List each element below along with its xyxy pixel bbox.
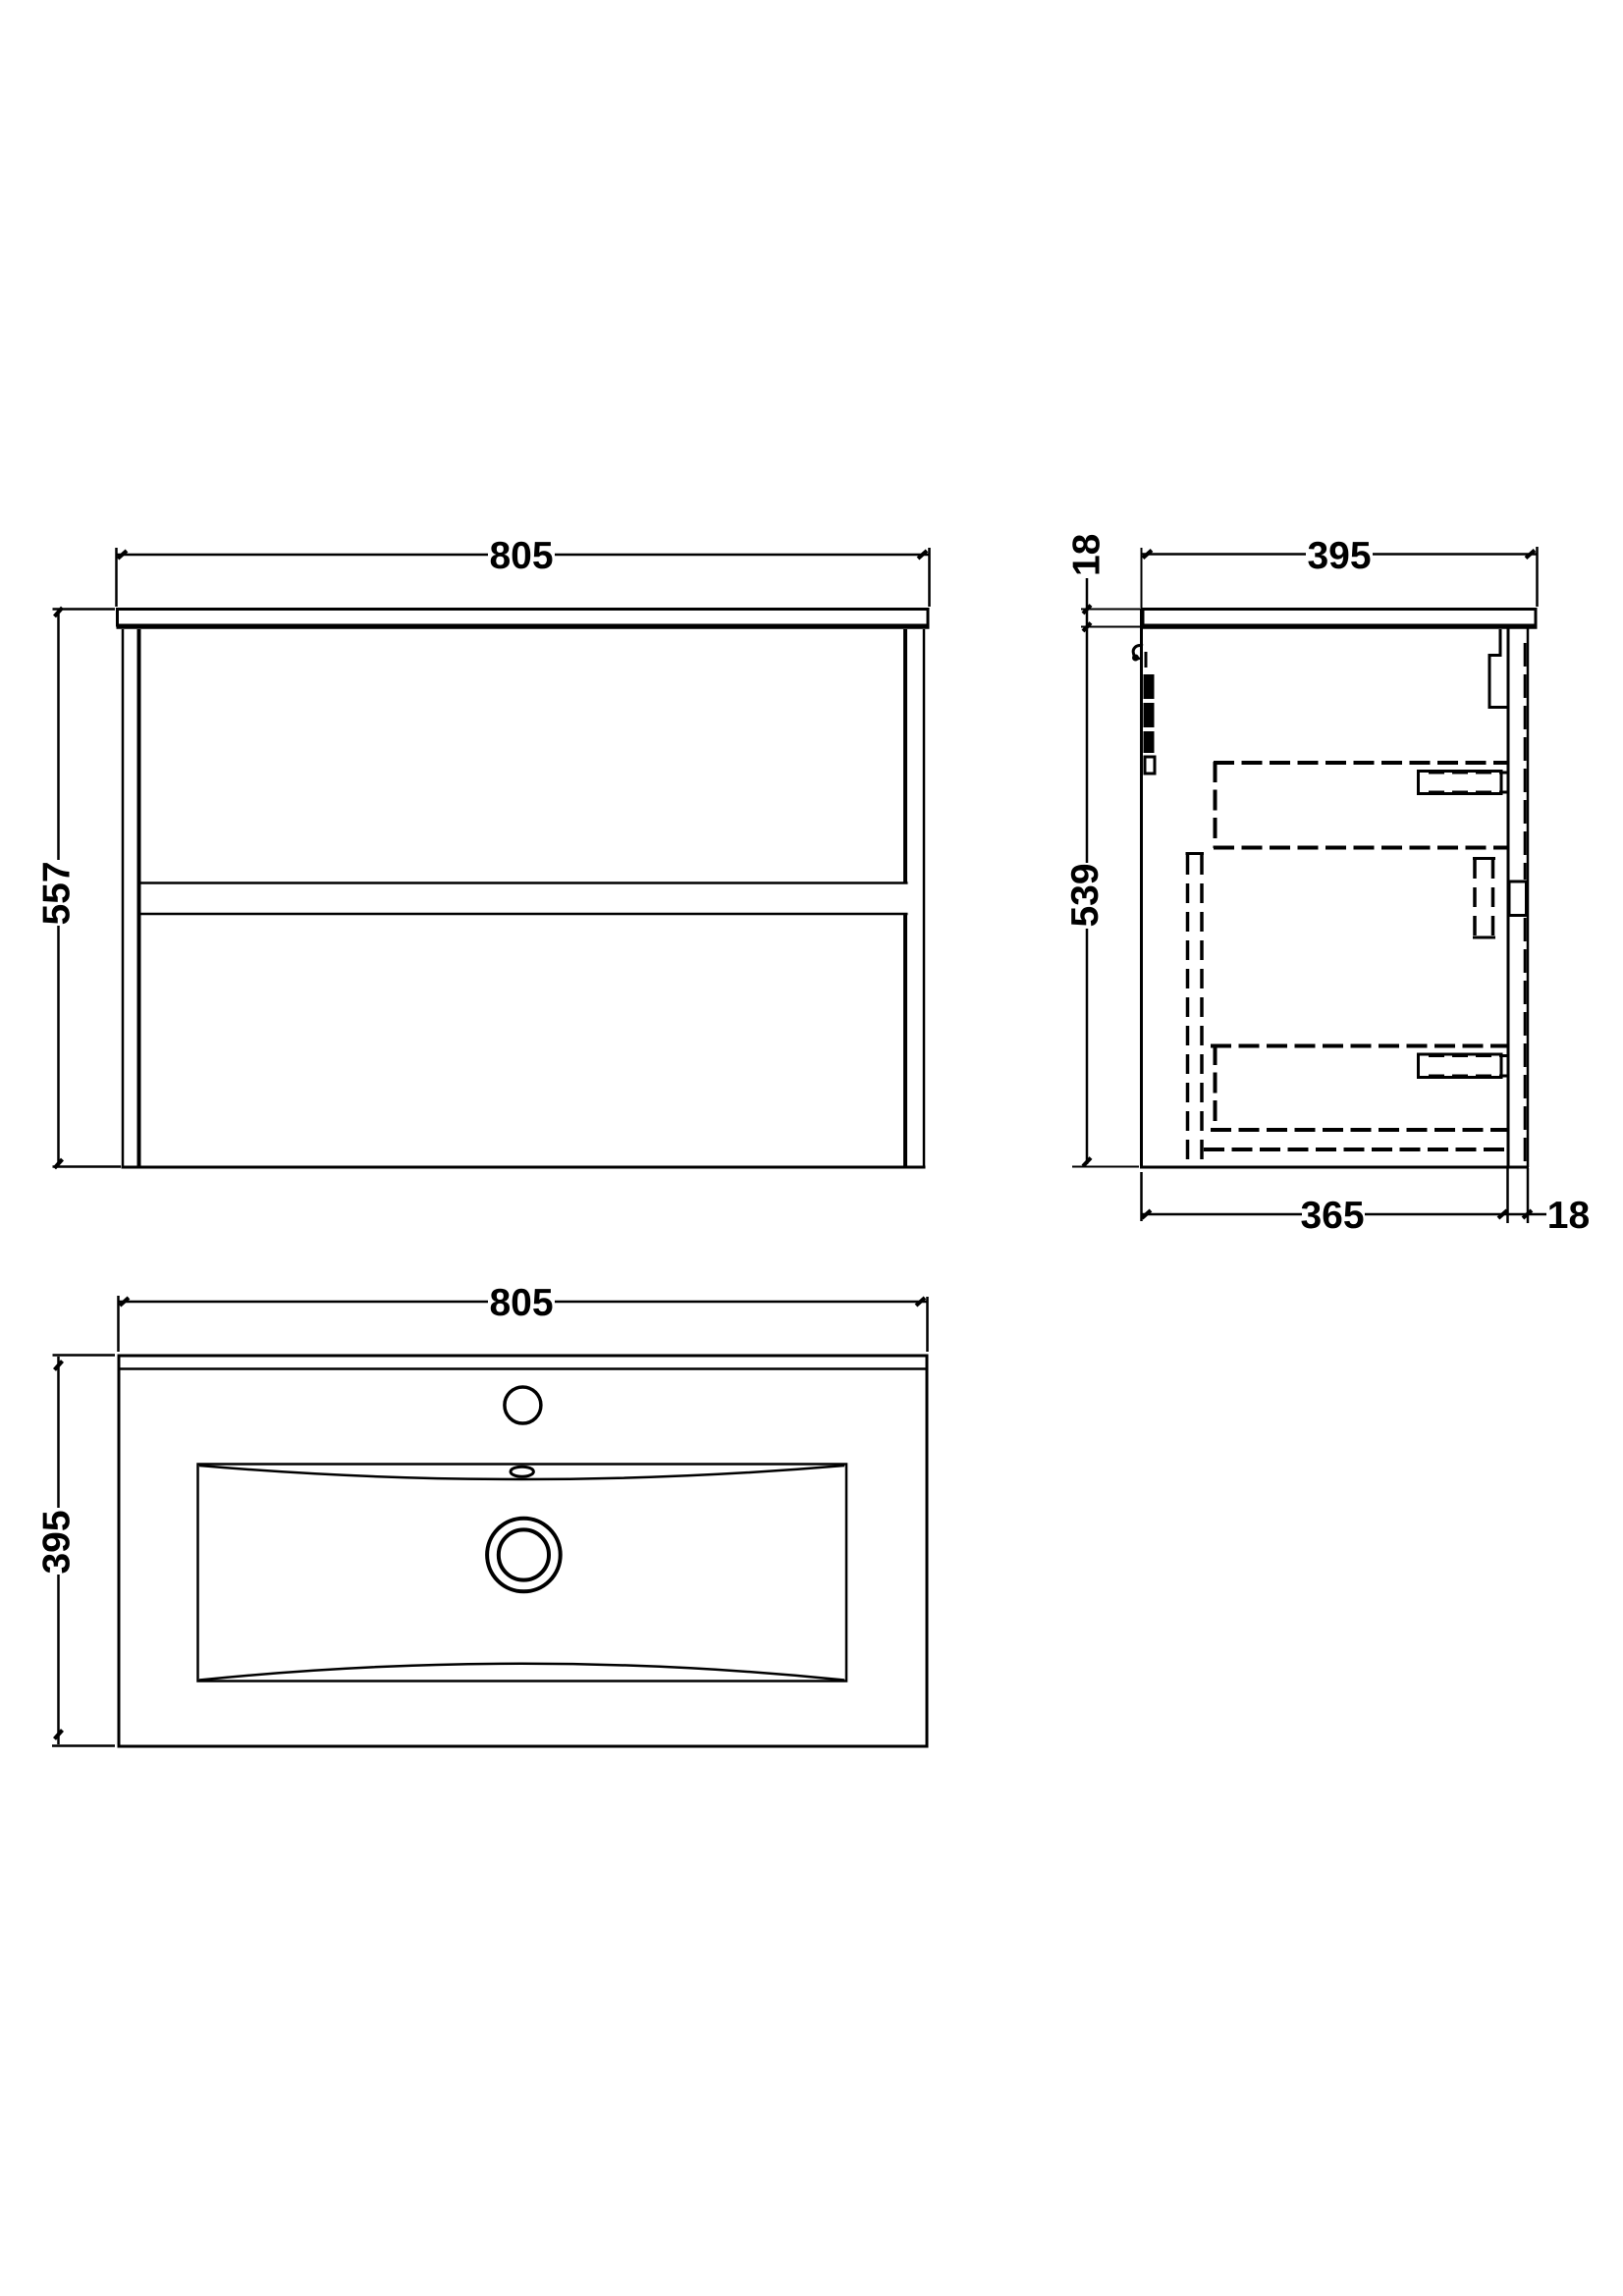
svg-text:395: 395 <box>1307 535 1371 577</box>
svg-text:557: 557 <box>36 861 79 925</box>
svg-text:539: 539 <box>1064 863 1107 927</box>
svg-text:395: 395 <box>36 1510 79 1574</box>
svg-text:18: 18 <box>1066 534 1109 576</box>
svg-text:365: 365 <box>1300 1195 1364 1237</box>
svg-text:18: 18 <box>1547 1195 1590 1237</box>
svg-text:805: 805 <box>489 535 553 577</box>
svg-text:805: 805 <box>489 1282 553 1324</box>
